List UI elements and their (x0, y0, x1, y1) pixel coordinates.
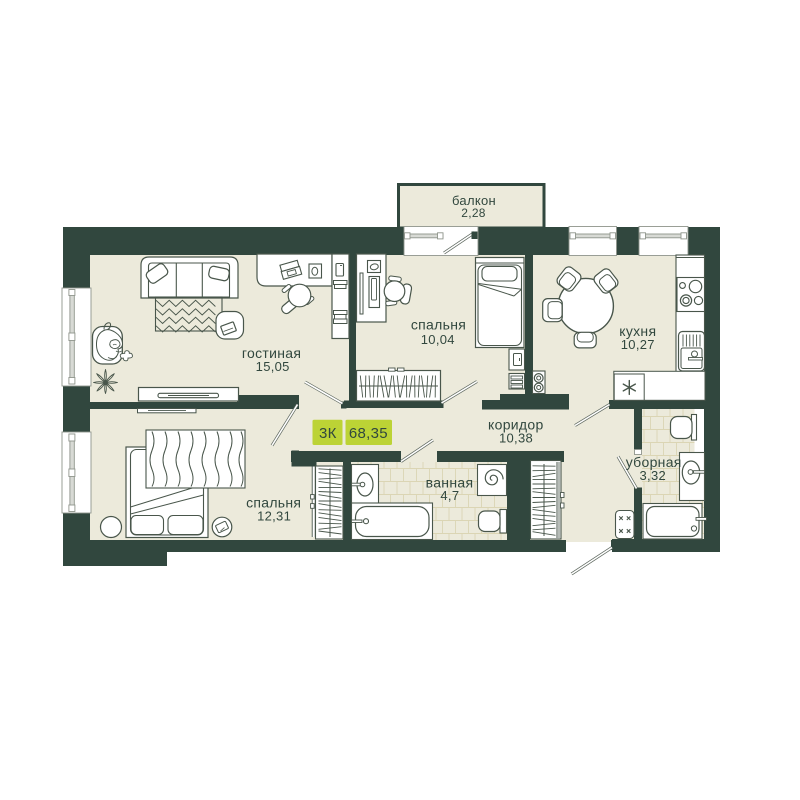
svg-text:68,35: 68,35 (349, 425, 388, 442)
svg-text:2,28: 2,28 (461, 206, 486, 220)
svg-text:15,05: 15,05 (256, 359, 290, 374)
svg-text:12,31: 12,31 (257, 508, 291, 523)
svg-text:3,32: 3,32 (640, 468, 667, 483)
svg-text:10,04: 10,04 (421, 332, 455, 347)
svg-text:10,27: 10,27 (621, 337, 655, 352)
svg-text:3К: 3К (319, 425, 337, 442)
svg-text:10,38: 10,38 (499, 431, 533, 446)
svg-text:спальня: спальня (411, 317, 466, 333)
svg-text:4,7: 4,7 (440, 488, 459, 503)
